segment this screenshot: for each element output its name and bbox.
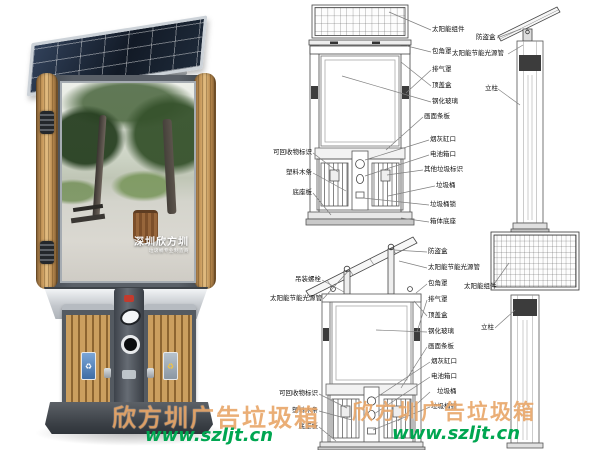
product-sheet: 深圳欣方圳 垃圾桶专业制造商 ♻ ♻: [0, 0, 600, 450]
watermark-url: www.szljt.cn: [392, 423, 520, 444]
part-label: 其他垃圾标识: [424, 166, 463, 173]
part-label: 顶盖盒: [432, 82, 452, 89]
part-label: 吊装螺栓: [277, 276, 321, 283]
part-label: 太阳能组件: [432, 26, 465, 33]
part-label: 箱体底座: [430, 218, 456, 225]
part-label: 钢化玻璃: [428, 328, 454, 335]
part-label: 烟灰缸口: [430, 136, 456, 143]
part-label: 立柱: [481, 324, 494, 331]
part-label: 防盗盒: [428, 248, 448, 255]
part-label: 包角罩: [432, 48, 452, 55]
top-side-view: [498, 7, 560, 234]
part-label: 垃圾桶: [436, 182, 456, 189]
part-label: 太阳能节能光源管: [452, 50, 504, 57]
part-label: 太阳能组件: [464, 283, 497, 290]
part-label: 画面条板: [424, 113, 450, 120]
part-label: 太阳能节能光源管: [268, 295, 322, 302]
part-label: 电池箱口: [430, 151, 456, 158]
part-label: 烟灰缸口: [431, 358, 457, 365]
part-label: 垃圾桶锁: [430, 201, 456, 208]
part-label: 顶盖盒: [428, 312, 448, 319]
part-label: 钢化玻璃: [432, 98, 458, 105]
part-label: 排气罩: [432, 66, 452, 73]
part-label: 电池箱口: [431, 373, 457, 380]
part-label: 包角罩: [428, 280, 448, 287]
top-front-view: [306, 5, 414, 225]
part-label: 底座板: [266, 189, 312, 196]
part-label: 立柱: [485, 85, 498, 92]
part-label: 画面条板: [428, 343, 454, 350]
part-label: 塑料木条: [266, 169, 312, 176]
watermark-brand: 欣方圳广告垃圾箱: [352, 396, 536, 426]
part-label: 可回收物标识: [266, 149, 312, 156]
part-label: 排气罩: [428, 296, 448, 303]
watermark-url: www.szljt.cn: [145, 425, 273, 446]
part-label: 防盗盒: [476, 34, 496, 41]
technical-drawings: [0, 0, 600, 450]
part-label: 垃圾桶: [437, 388, 457, 395]
part-label: 可回收物标识: [272, 390, 318, 397]
part-label: 太阳能节能光源管: [428, 264, 480, 271]
